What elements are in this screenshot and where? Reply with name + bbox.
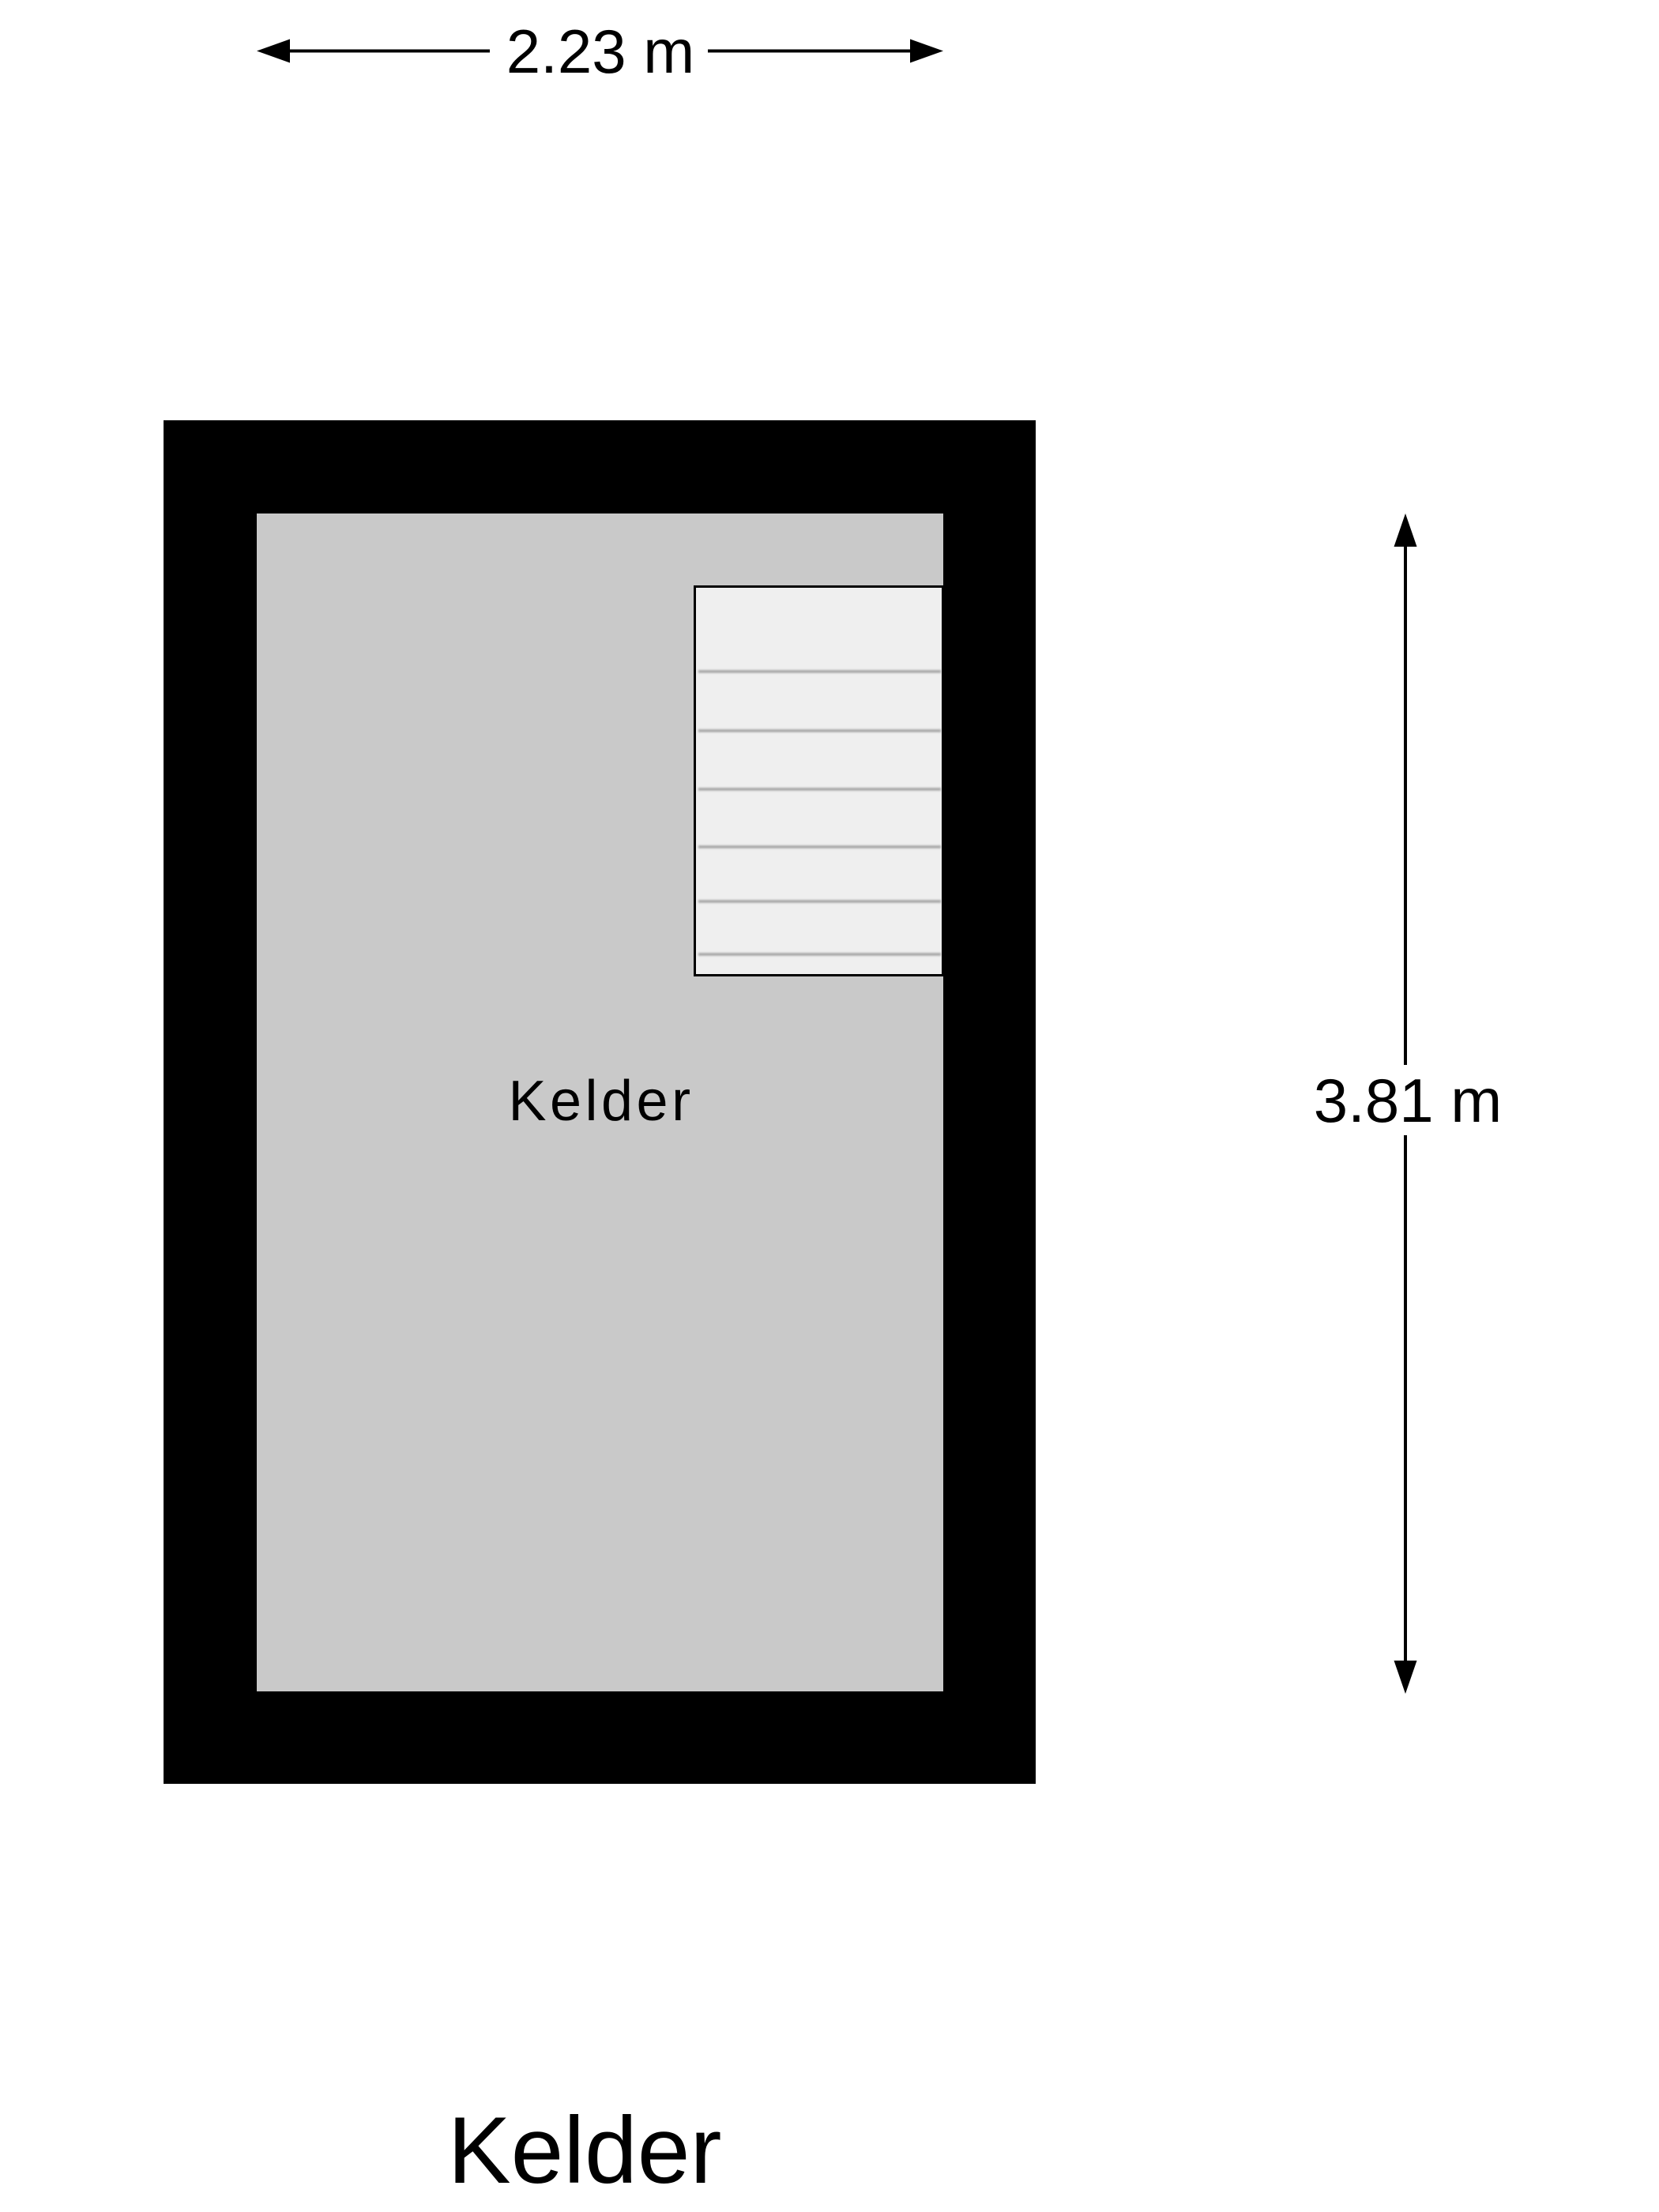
svg-text:2.23 m: 2.23 m [506, 17, 694, 86]
svg-text:Kelder: Kelder [508, 1070, 694, 1133]
svg-text:Kelder: Kelder [448, 2097, 722, 2203]
svg-text:3.81 m: 3.81 m [1314, 1066, 1502, 1135]
